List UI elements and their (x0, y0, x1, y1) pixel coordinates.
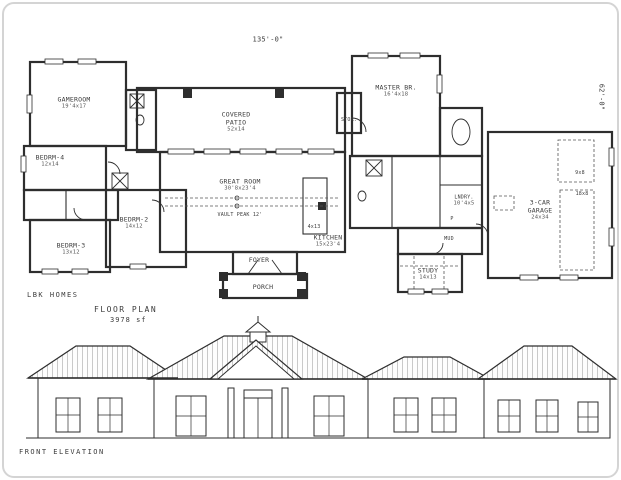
room-label-kitchen: KITCHEN 15x23'4 (314, 234, 343, 249)
room-label-porch: PORCH (253, 283, 274, 291)
front-elevation (26, 316, 616, 438)
room-label-lndry: LNDRY. 10'4x5 (453, 194, 474, 207)
dim-text: 135'-0" (253, 36, 284, 44)
overall-depth-dimension: 62'-0" (597, 84, 606, 111)
room-label-great-room: GREAT ROOM 30'8x23'4 (219, 178, 260, 193)
dim-text: 62'-0" (597, 84, 605, 111)
cupola (246, 316, 270, 342)
room-label-bedrm4: BEDRM-4 12x14 (36, 154, 65, 169)
room-label-bedrm3: BEDRM-3 13x12 (57, 242, 86, 257)
porch-column (228, 388, 234, 438)
room-label-study: STUDY 14x13 (418, 267, 439, 282)
garage-door-double-dim: 18x8 (576, 191, 589, 197)
pantry-label: P (450, 216, 453, 222)
room-label-gameroom: GAMEROOM 19'4x17 (58, 96, 91, 111)
plan-area: 3978 sf (110, 316, 147, 324)
elevation-title: FRONT ELEVATION (19, 448, 105, 456)
room-label-master-br: MASTER BR. 16'4x18 (375, 84, 416, 99)
drawing-canvas (0, 0, 621, 480)
island-dimension: 4x13 (308, 224, 321, 230)
firm-name: LBK HOMES (27, 291, 78, 299)
shower-symbols (112, 94, 382, 189)
room-label-covered-patio: COVERED PATIO 52x14 (213, 110, 259, 133)
room-label-garage: 3-CAR GARAGE 24x34 (520, 198, 560, 221)
room-label-mud: MUD (444, 236, 454, 242)
plan-title: FLOOR PLAN (94, 305, 157, 314)
room-label-bedrm2: BEDRM-2 14x12 (120, 216, 149, 231)
overall-width-dimension: 135'-0" (253, 36, 284, 45)
porch-column (282, 388, 288, 438)
blueprint-sheet: 135'-0" 62'-0" GAMEROOM 19'4x17 BEDRM-4 … (0, 0, 621, 480)
garage-door-single-dim: 9x8 (575, 170, 585, 176)
transom-window (244, 390, 272, 398)
vault-note: VAULT PEAK 12' (218, 212, 263, 218)
room-label-stor: STOR. (341, 117, 357, 123)
room-label-foyer: FOYER (249, 256, 270, 264)
elevation-roofs (28, 336, 616, 379)
